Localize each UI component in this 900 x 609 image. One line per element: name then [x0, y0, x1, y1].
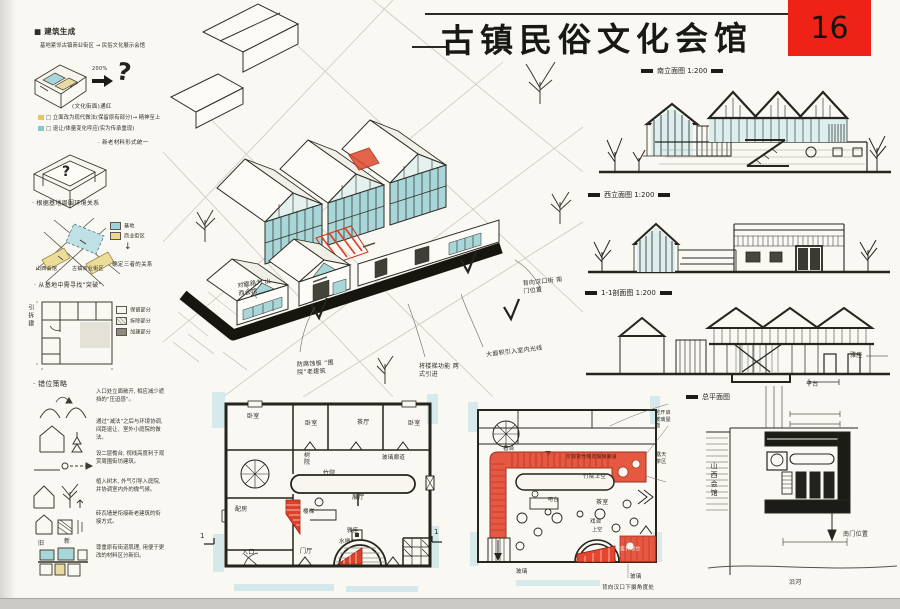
site-plan-label: 总平面图	[686, 392, 730, 402]
demolish-swatch	[116, 317, 127, 325]
orange-highlight-chip	[38, 115, 44, 120]
site-relation-heading: · 根据基地周围环境关系	[32, 200, 99, 208]
label-bar-icon	[641, 69, 653, 73]
legend-keep: 保留部分	[116, 306, 151, 314]
down-arrow-icon: ↓	[124, 242, 132, 254]
site-annotation-river: 沿河	[789, 579, 802, 587]
label-bar-icon	[686, 395, 698, 399]
new-tag: 新	[64, 538, 70, 546]
street-face-note: (文化街面)通红	[72, 104, 112, 111]
label-bar-icon	[588, 193, 600, 197]
strategy-row-text: 砖瓦墙是衔接新老建筑的衔接方式。	[96, 511, 166, 527]
keep-swatch	[116, 306, 127, 314]
strategy-row-text: 植入树木, 外气引导入庭院, 并协调室内外的微气候。	[96, 479, 166, 495]
guild-hall-label: 山西会馆	[36, 266, 57, 273]
street-swatch	[110, 232, 121, 240]
label-viewing-stand: 看台	[503, 446, 515, 453]
legend-street: 商业街区	[110, 232, 145, 240]
section-annotation-platform: 平台	[806, 381, 819, 389]
south-elevation-drawing	[595, 60, 895, 190]
sightline-sketch	[32, 456, 94, 476]
room-label-exhibit-hall: 展厅	[352, 494, 365, 502]
annotation-stair-function: 将楼梯功能 两式引进	[419, 363, 463, 379]
label-stage: 戏台	[590, 519, 602, 526]
section-label: 1-1剖面图 1:200	[585, 288, 672, 298]
legend-demolish: 拆除部分	[116, 317, 151, 325]
section-drawing	[584, 296, 894, 390]
demolish-build-label: 引拆建	[26, 304, 34, 328]
label-down: 下	[545, 451, 551, 459]
plan1-walls	[204, 401, 442, 566]
legend-site: 基地	[110, 222, 134, 230]
south-elevation-label: 南立面图 1:200	[641, 66, 723, 76]
offset-strategy-heading: · 错位策略	[33, 380, 67, 389]
west-elevation-label: 西立面图 1:200	[588, 190, 670, 200]
room-label-bedroom1: 卧室	[247, 413, 260, 421]
label-glass-2: 玻璃	[630, 574, 642, 581]
scan-edge	[0, 598, 900, 609]
label-glass-1: 玻璃	[516, 569, 528, 576]
plan-strategy-grid-sketch	[36, 296, 120, 372]
roof-plan	[706, 428, 897, 575]
sheet-number-badge: 16	[788, 0, 871, 56]
label-outdoor-tea: 露天茶区	[656, 452, 668, 465]
sheet-title: 古镇民俗文化会馆	[441, 12, 753, 63]
room-label-entrance: 入口	[242, 549, 255, 557]
label-bar-icon	[711, 69, 723, 73]
strategy-row-text: 入口处立面敞开, 相应减少遮挡的“压迫感”。	[96, 389, 166, 405]
relation-note: · 确定三者的关系	[108, 262, 153, 269]
room-label-side-room: 配房	[235, 506, 248, 514]
label-stage-void: 上空	[592, 527, 603, 534]
room-label-bedroom2: 卧室	[305, 420, 318, 428]
question-mark-2: ?	[62, 164, 70, 180]
strategy-note-1: □ 立面改为现代做法(保留原有部分)→ 精神至上	[38, 115, 166, 123]
neighbor-buildings	[171, 4, 298, 128]
house-tree-sketch	[32, 478, 94, 512]
room-label-seat: 雅座	[347, 528, 359, 535]
label-bar-icon	[585, 291, 597, 295]
room-label-stair: 楼梯	[303, 509, 315, 516]
zoom-ratio-label: 200%	[92, 66, 108, 73]
legend-add: 加建部分	[116, 328, 151, 336]
house-pagoda-sketch	[36, 420, 94, 456]
label-bamboo-void: 竹院上空	[583, 474, 606, 481]
add-swatch	[116, 328, 127, 336]
strategy-row-text: 设二层檐台, 视线高度利于观赏周围街坊建筑。	[96, 451, 166, 467]
question-mark: ?	[115, 57, 133, 87]
old-tag: 旧	[38, 540, 44, 548]
label-bar-icon	[658, 193, 670, 197]
room-label-water-bar: 水吧	[339, 539, 351, 546]
teal-highlight-chip	[38, 126, 44, 131]
roofline-sketch	[36, 392, 94, 422]
room-label-tea-hall: 茶厅	[357, 419, 370, 427]
plan2-red-stair-terrace	[577, 526, 656, 562]
presentation-sheet: 古镇民俗文化会馆 16 ■ 建筑生成 基地紧邻古镇商业街区 → 民俗文化展示会馆…	[0, 0, 900, 609]
room-label-glass-corridor: 玻璃廊道	[382, 455, 405, 462]
sidebar-line1: 基地紧邻古镇商业街区 → 民俗文化展示会馆	[40, 43, 162, 51]
label-outdoor-terrace: 室外观台	[620, 547, 640, 553]
section-annotation-seat: 雅座	[850, 352, 863, 360]
label-corridor-note: 可观赏竹院及玻璃廊道	[566, 455, 617, 461]
breakthrough-note: · 从基地中需寻找“突破”	[34, 282, 102, 290]
site-annotation-guild-hall: 山西会馆	[709, 462, 718, 498]
room-label-bedroom3: 卧室	[408, 420, 421, 428]
sidebar-heading-generation: ■ 建筑生成	[34, 27, 76, 37]
label-bar-icon	[660, 291, 672, 295]
label-plan2-note: 背向汉口下摄角度处	[602, 585, 654, 592]
west-elevation-drawing	[586, 200, 893, 284]
annotation-wood-enclosure: 防腐蚀板 “围院”老建筑	[297, 359, 346, 377]
room-label-bamboo-court: 竹院	[323, 470, 336, 478]
section-marker-left: 1	[200, 532, 205, 541]
section-marker-right: 1	[434, 528, 439, 537]
site-annotation-south-gate: 南门位置	[843, 531, 868, 539]
arrow-icon	[92, 74, 114, 88]
room-label-entry-hall: 门厅	[300, 548, 313, 556]
site-swatch	[110, 222, 121, 230]
strategy-note-2: □ 退让/体量变化呼应(实为传承重现)	[38, 126, 166, 134]
street-fabric-mini-plan	[36, 544, 90, 580]
floor-plan-2-drawing	[460, 386, 670, 591]
label-tea-room: 茶室	[596, 499, 609, 507]
strategy-note-3: · 新老材料形式统一	[98, 140, 149, 147]
label-bar-counter: 吧台	[548, 497, 559, 504]
site-plan-drawing	[698, 380, 898, 605]
label-openable-roof: 可开启玻璃屋面	[655, 410, 672, 430]
strategy-row-text: 尊重原有街道肌理, 用便于更改的材料区分新旧。	[96, 545, 166, 561]
old-new-joint-sketch	[34, 510, 96, 538]
strategy-row-text: 通过“减法”之后与环境协调, 间距退让、室外小庭院的做法。	[96, 419, 166, 442]
street-block-label: 古镇商业街区	[72, 266, 104, 273]
room-label-tree-court: 树院	[304, 452, 312, 466]
